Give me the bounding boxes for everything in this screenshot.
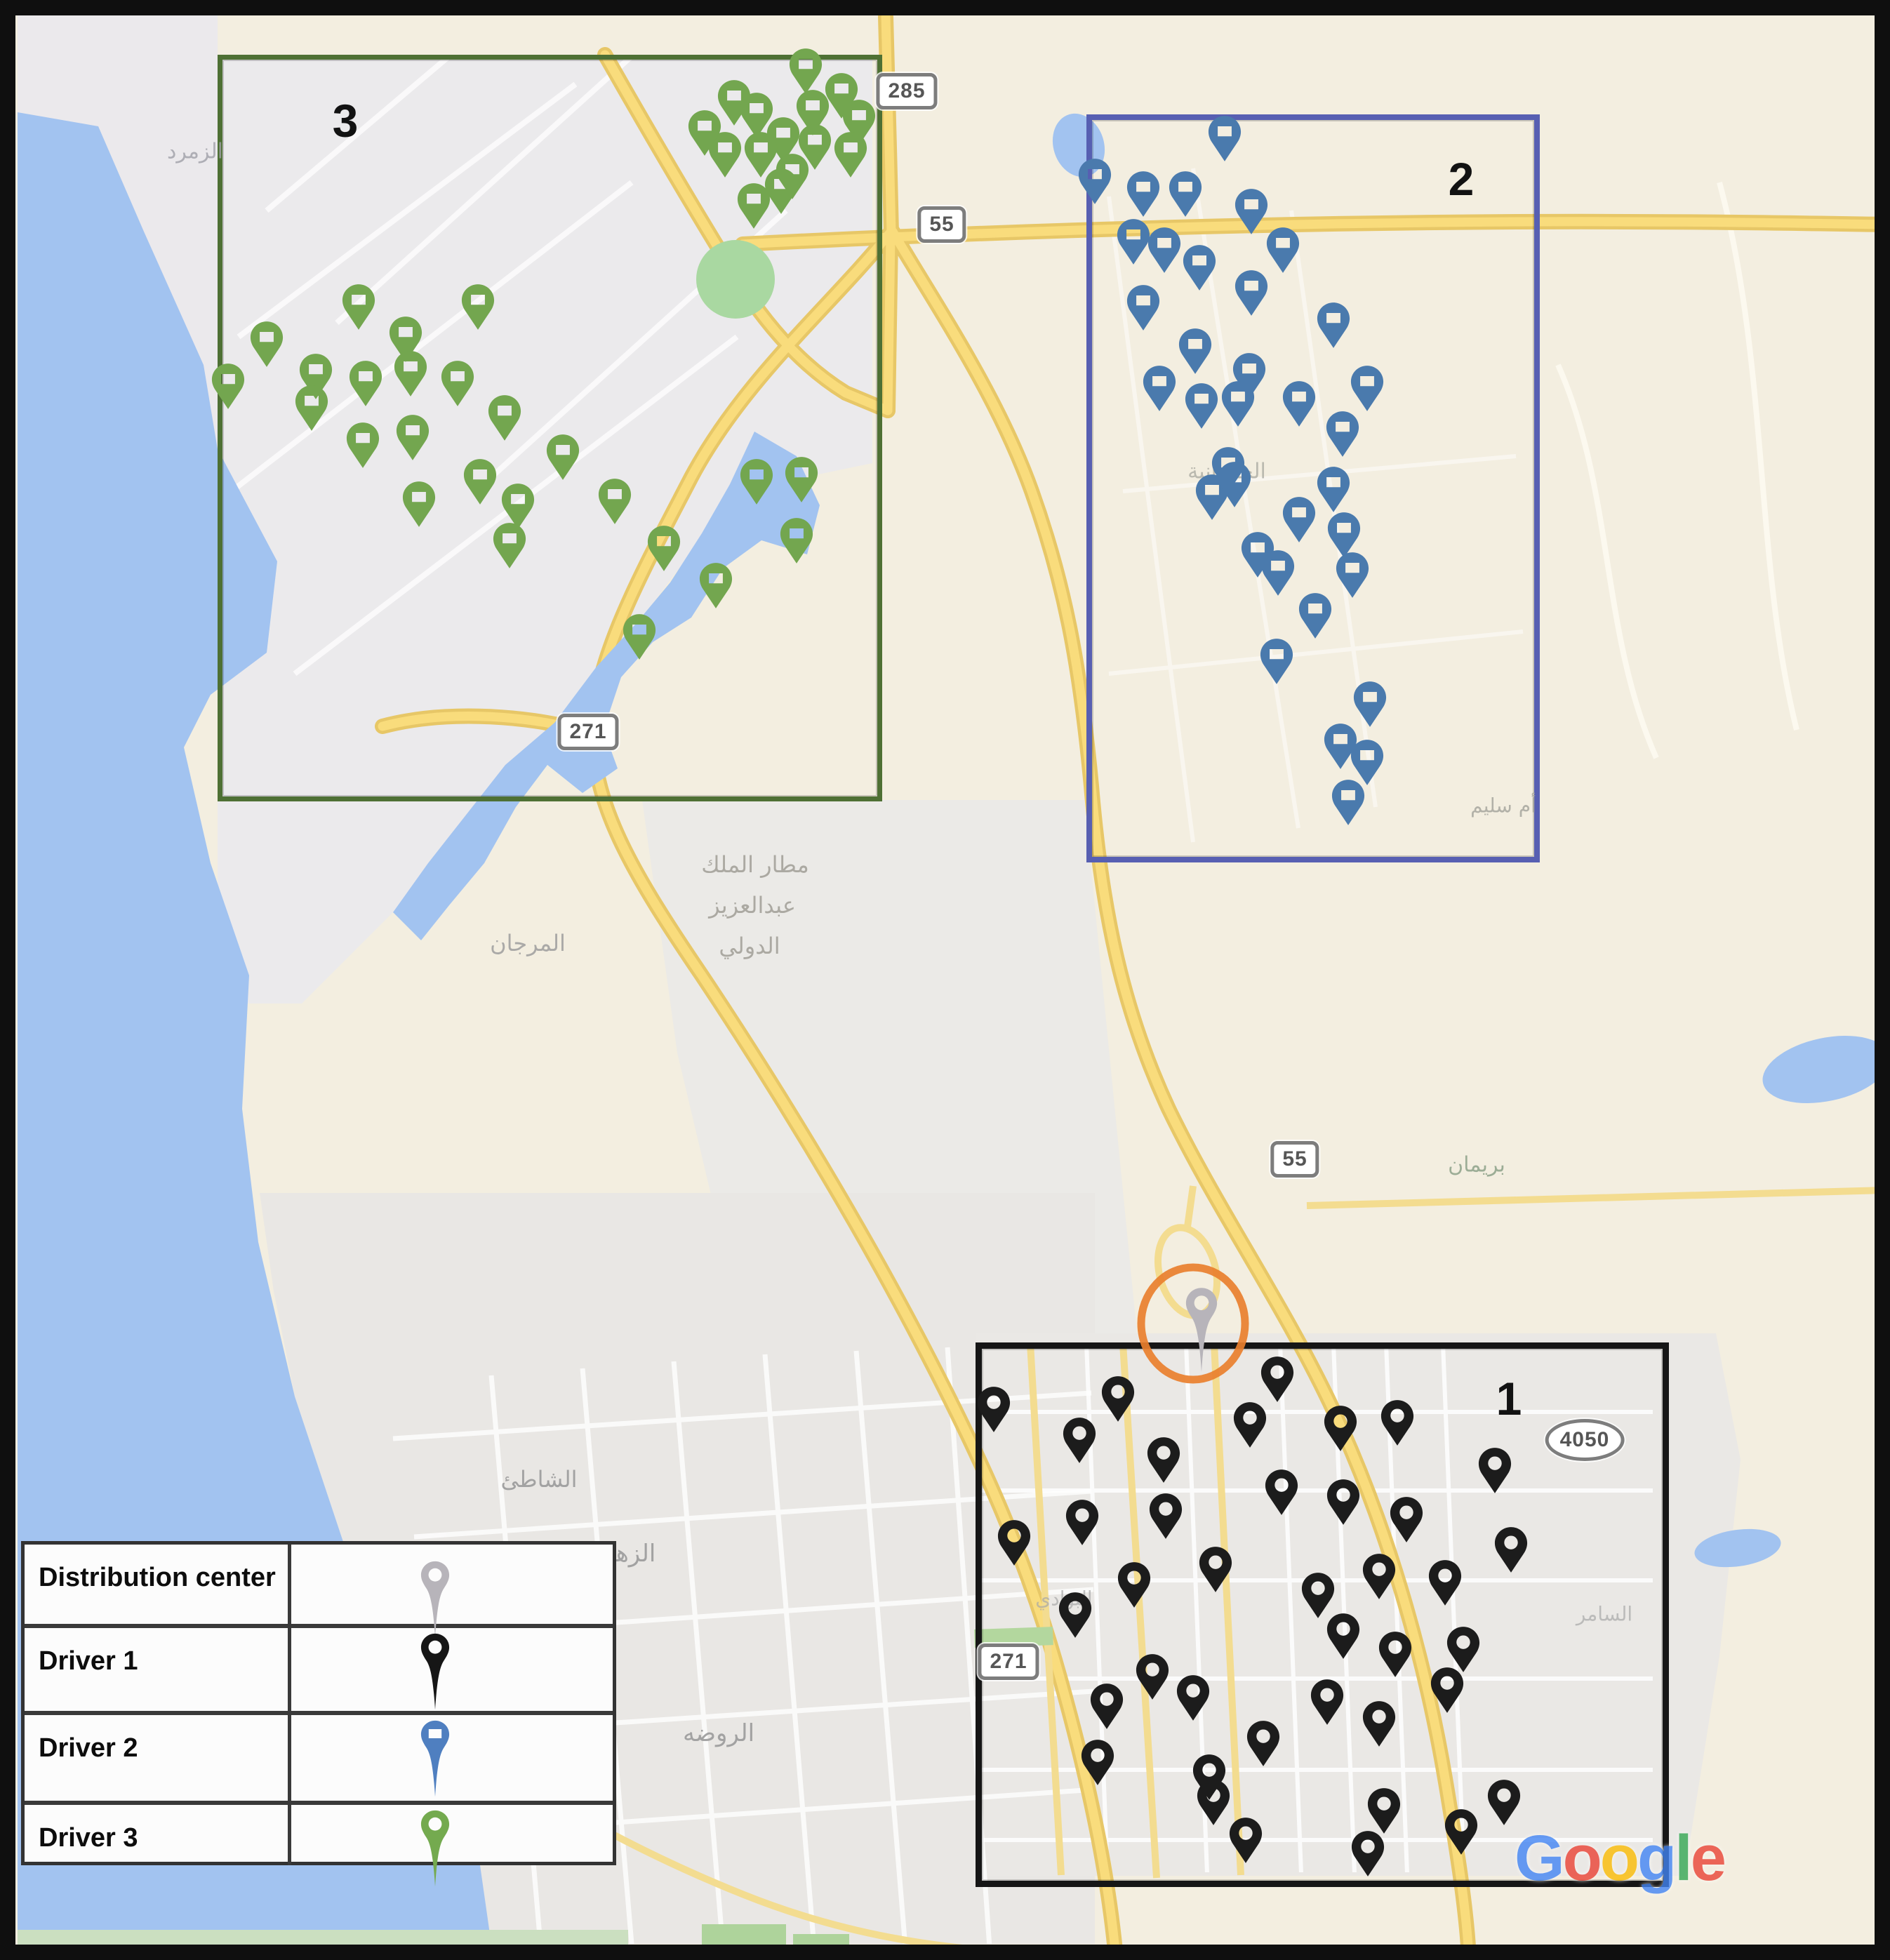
driver3-pin[interactable] bbox=[342, 284, 375, 330]
map-screenshot: 28555271552714050 الزمردالمرجانالشاطئالز… bbox=[0, 0, 1890, 1960]
driver3-pin[interactable] bbox=[547, 434, 579, 480]
driver2-pin[interactable] bbox=[1148, 227, 1180, 273]
legend-label: Distribution center bbox=[25, 1545, 291, 1624]
driver1-pin[interactable] bbox=[1150, 1493, 1182, 1539]
legend-row-blue: Driver 2 bbox=[25, 1711, 613, 1801]
driver1-pin[interactable] bbox=[1091, 1684, 1123, 1729]
driver3-pin[interactable] bbox=[295, 385, 328, 431]
cluster-3-number: 3 bbox=[333, 94, 359, 147]
driver3-pin[interactable] bbox=[251, 321, 283, 367]
driver2-pin[interactable] bbox=[1117, 219, 1150, 265]
legend-label: Driver 3 bbox=[25, 1805, 291, 1865]
driver2-pin[interactable] bbox=[1354, 681, 1386, 727]
legend-pin-cell bbox=[291, 1805, 613, 1865]
driver1-pin[interactable] bbox=[1390, 1497, 1423, 1542]
google-logo-letter: o bbox=[1600, 1822, 1637, 1894]
driver3-pin[interactable] bbox=[648, 526, 680, 571]
driver2-pin[interactable] bbox=[1185, 383, 1218, 429]
driver3-pin[interactable] bbox=[488, 395, 521, 441]
driver3-pin[interactable] bbox=[394, 351, 427, 396]
driver1-pin[interactable] bbox=[1488, 1780, 1520, 1825]
driver1-pin[interactable] bbox=[1311, 1679, 1343, 1725]
driver3-pin[interactable] bbox=[765, 168, 797, 214]
driver2-pin[interactable] bbox=[1179, 328, 1211, 374]
driver3-pin[interactable] bbox=[441, 361, 474, 406]
driver1-pin[interactable] bbox=[998, 1520, 1030, 1566]
google-logo-letter: l bbox=[1675, 1822, 1691, 1894]
cluster-2-number: 2 bbox=[1449, 152, 1475, 206]
legend-pin-cell bbox=[291, 1628, 613, 1711]
legend-label: Driver 1 bbox=[25, 1628, 291, 1711]
driver1-pin[interactable] bbox=[1147, 1437, 1180, 1483]
driver2-pin[interactable] bbox=[1299, 593, 1331, 639]
driver3-pin[interactable] bbox=[740, 459, 773, 505]
blue-pin-icon bbox=[415, 1718, 455, 1799]
driver2-pin[interactable] bbox=[1235, 270, 1267, 316]
driver1-pin[interactable] bbox=[1059, 1592, 1091, 1638]
driver1-pin[interactable] bbox=[1082, 1740, 1114, 1785]
driver2-pin[interactable] bbox=[1351, 740, 1383, 785]
driver2-pin[interactable] bbox=[1079, 159, 1111, 204]
driver3-pin[interactable] bbox=[738, 183, 770, 229]
driver1-pin[interactable] bbox=[1479, 1448, 1511, 1493]
driver1-pin[interactable] bbox=[1324, 1406, 1357, 1451]
driver2-pin[interactable] bbox=[1332, 780, 1364, 825]
distribution-center-ring bbox=[1141, 1267, 1245, 1380]
driver1-pin[interactable] bbox=[1445, 1809, 1477, 1855]
driver1-pin[interactable] bbox=[1102, 1376, 1134, 1422]
driver2-pin[interactable] bbox=[1267, 227, 1299, 273]
google-logo-letter: g bbox=[1637, 1822, 1675, 1894]
driver3-pin[interactable] bbox=[397, 415, 429, 460]
driver2-pin[interactable] bbox=[1222, 381, 1254, 427]
google-logo-letter: G bbox=[1515, 1822, 1563, 1894]
driver3-pin[interactable] bbox=[825, 73, 858, 119]
black-pin-icon bbox=[415, 1631, 455, 1712]
driver3-pin[interactable] bbox=[502, 484, 534, 529]
driver1-pin[interactable] bbox=[1234, 1402, 1266, 1448]
driver2-pin[interactable] bbox=[1169, 171, 1202, 217]
driver3-pin[interactable] bbox=[212, 364, 244, 409]
driver1-pin[interactable] bbox=[1363, 1701, 1395, 1747]
driver1-pin[interactable] bbox=[1265, 1469, 1298, 1515]
driver1-pin[interactable] bbox=[1199, 1547, 1232, 1592]
driver2-pin[interactable] bbox=[1127, 285, 1159, 331]
google-logo[interactable]: Google bbox=[1515, 1822, 1724, 1895]
gray-pin-icon bbox=[415, 1559, 455, 1640]
driver2-pin[interactable] bbox=[1326, 411, 1359, 457]
driver3-pin[interactable] bbox=[785, 457, 818, 502]
driver3-pin[interactable] bbox=[347, 422, 379, 468]
driver1-pin[interactable] bbox=[1431, 1667, 1463, 1713]
driver1-pin[interactable] bbox=[978, 1387, 1010, 1432]
legend-pin-cell bbox=[291, 1545, 613, 1624]
driver2-pin[interactable] bbox=[1127, 171, 1159, 217]
driver3-pin[interactable] bbox=[599, 479, 631, 524]
driver2-pin[interactable] bbox=[1317, 302, 1350, 348]
driver3-pin[interactable] bbox=[462, 284, 494, 330]
driver2-pin[interactable] bbox=[1317, 467, 1350, 512]
driver2-pin[interactable] bbox=[1143, 366, 1176, 411]
driver1-pin[interactable] bbox=[1177, 1675, 1209, 1721]
distribution-center-pin[interactable] bbox=[1186, 1288, 1217, 1372]
driver3-pin[interactable] bbox=[700, 563, 732, 608]
driver2-pin[interactable] bbox=[1235, 189, 1267, 234]
driver1-pin[interactable] bbox=[1368, 1788, 1400, 1834]
driver3-pin[interactable] bbox=[493, 523, 526, 568]
driver2-pin[interactable] bbox=[1209, 116, 1241, 161]
driver2-pin[interactable] bbox=[1283, 497, 1315, 542]
legend-table: Distribution centerDriver 1Driver 2Drive… bbox=[21, 1541, 616, 1865]
driver1-pin[interactable] bbox=[1363, 1554, 1395, 1599]
driver3-pin[interactable] bbox=[745, 132, 777, 178]
driver1-pin[interactable] bbox=[1261, 1356, 1293, 1402]
driver2-pin[interactable] bbox=[1283, 381, 1315, 427]
green-pin-icon bbox=[415, 1808, 455, 1889]
driver3-pin[interactable] bbox=[623, 614, 655, 660]
driver1-pin[interactable] bbox=[1247, 1721, 1279, 1766]
driver1-pin[interactable] bbox=[1327, 1613, 1359, 1659]
driver2-pin[interactable] bbox=[1183, 245, 1216, 291]
legend-pin-cell bbox=[291, 1715, 613, 1801]
driver3-pin[interactable] bbox=[780, 518, 813, 564]
legend-row-green: Driver 3 bbox=[25, 1801, 613, 1865]
driver1-pin[interactable] bbox=[1429, 1560, 1461, 1606]
driver3-pin[interactable] bbox=[834, 132, 867, 178]
driver1-pin[interactable] bbox=[1063, 1418, 1096, 1463]
driver1-pin[interactable] bbox=[1495, 1527, 1527, 1573]
driver1-pin[interactable] bbox=[1327, 1479, 1359, 1525]
driver2-pin[interactable] bbox=[1328, 512, 1360, 558]
driver3-pin[interactable] bbox=[464, 459, 496, 505]
driver1-pin[interactable] bbox=[1136, 1654, 1169, 1700]
driver1-pin[interactable] bbox=[1352, 1831, 1384, 1876]
driver1-pin[interactable] bbox=[1379, 1632, 1411, 1677]
google-logo-letter: e bbox=[1691, 1822, 1724, 1894]
google-logo-letter: o bbox=[1563, 1822, 1600, 1894]
driver1-pin[interactable] bbox=[1230, 1818, 1262, 1863]
legend-label: Driver 2 bbox=[25, 1715, 291, 1801]
cluster-1-number: 1 bbox=[1496, 1372, 1522, 1425]
legend-row-black: Driver 1 bbox=[25, 1624, 613, 1711]
driver1-pin[interactable] bbox=[1381, 1400, 1413, 1446]
driver2-pin[interactable] bbox=[1260, 639, 1293, 684]
driver3-pin[interactable] bbox=[350, 361, 382, 406]
driver2-pin[interactable] bbox=[1324, 724, 1357, 769]
driver3-pin[interactable] bbox=[403, 481, 435, 527]
driver2-pin[interactable] bbox=[1336, 552, 1369, 598]
driver1-pin[interactable] bbox=[1447, 1627, 1479, 1672]
driver1-pin[interactable] bbox=[1066, 1500, 1098, 1545]
driver3-pin[interactable] bbox=[790, 48, 822, 94]
legend-row-gray: Distribution center bbox=[25, 1545, 613, 1624]
driver1-pin[interactable] bbox=[1302, 1573, 1334, 1618]
driver2-pin[interactable] bbox=[1351, 366, 1383, 411]
driver2-pin[interactable] bbox=[1262, 550, 1294, 596]
driver1-pin[interactable] bbox=[1197, 1780, 1230, 1825]
driver1-pin[interactable] bbox=[1118, 1562, 1150, 1608]
